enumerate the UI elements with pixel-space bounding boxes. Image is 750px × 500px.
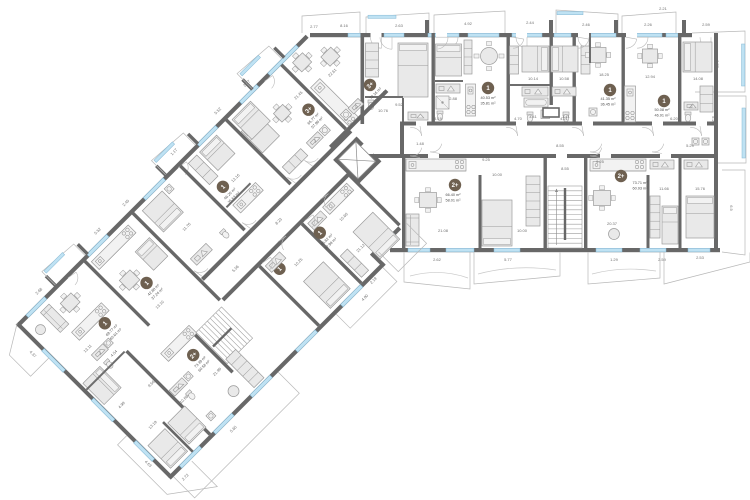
svg-text:41.35 m²: 41.35 m² [601,97,617,101]
svg-text:2.77: 2.77 [310,24,319,29]
svg-text:2+: 2+ [452,183,459,189]
svg-text:3.41: 3.41 [529,114,538,119]
svg-text:2+: 2+ [618,174,625,180]
svg-text:40.53 m²: 40.53 m² [481,96,497,100]
svg-text:12.94: 12.94 [645,74,656,79]
svg-text:2.46: 2.46 [582,22,591,27]
svg-text:35.81 m²: 35.81 m² [481,102,497,106]
svg-text:10.58: 10.58 [559,76,570,81]
svg-text:1.29: 1.29 [610,257,619,262]
svg-text:4.70: 4.70 [514,116,523,121]
svg-text:2.59: 2.59 [702,22,711,27]
svg-text:36.45 m²: 36.45 m² [601,103,617,107]
svg-text:10.14: 10.14 [528,76,539,81]
svg-text:58.01 m²: 58.01 m² [446,199,462,203]
svg-text:10.00: 10.00 [492,172,503,177]
svg-text:10.76: 10.76 [378,108,389,113]
svg-text:60.93 m²: 60.93 m² [633,187,649,191]
svg-text:46.91 m²: 46.91 m² [655,114,671,118]
svg-text:8.16: 8.16 [340,23,349,28]
svg-text:15.76: 15.76 [695,186,706,191]
svg-text:73.71 m²: 73.71 m² [633,181,649,185]
svg-text:5.77: 5.77 [504,257,513,262]
svg-text:66.40 m²: 66.40 m² [446,193,462,197]
svg-text:2.63: 2.63 [395,23,404,28]
svg-text:9.25: 9.25 [596,159,605,164]
svg-text:1.48: 1.48 [416,141,425,146]
svg-text:21.08: 21.08 [438,228,449,233]
svg-text:20.37: 20.37 [607,221,618,226]
svg-text:8.55: 8.55 [561,166,570,171]
svg-text:6.20: 6.20 [670,116,679,121]
svg-text:4.21: 4.21 [560,116,569,121]
svg-text:10.00: 10.00 [517,228,528,233]
svg-text:9.25: 9.25 [482,157,491,162]
svg-text:14.08: 14.08 [693,76,704,81]
svg-text:11.66: 11.66 [659,186,669,191]
svg-text:8.55: 8.55 [556,143,565,148]
svg-text:18.25: 18.25 [599,72,610,77]
svg-text:2.44: 2.44 [526,20,535,25]
svg-text:4.92: 4.92 [464,21,473,26]
svg-text:2.26: 2.26 [644,22,653,27]
svg-text:2.21: 2.21 [659,6,668,11]
svg-text:2.62: 2.62 [433,257,442,262]
svg-text:2.53: 2.53 [696,255,705,260]
svg-text:6.9: 6.9 [729,205,734,211]
svg-text:2.59: 2.59 [658,257,667,262]
svg-text:4.19: 4.19 [434,116,443,121]
svg-text:50.08 m²: 50.08 m² [655,108,671,112]
